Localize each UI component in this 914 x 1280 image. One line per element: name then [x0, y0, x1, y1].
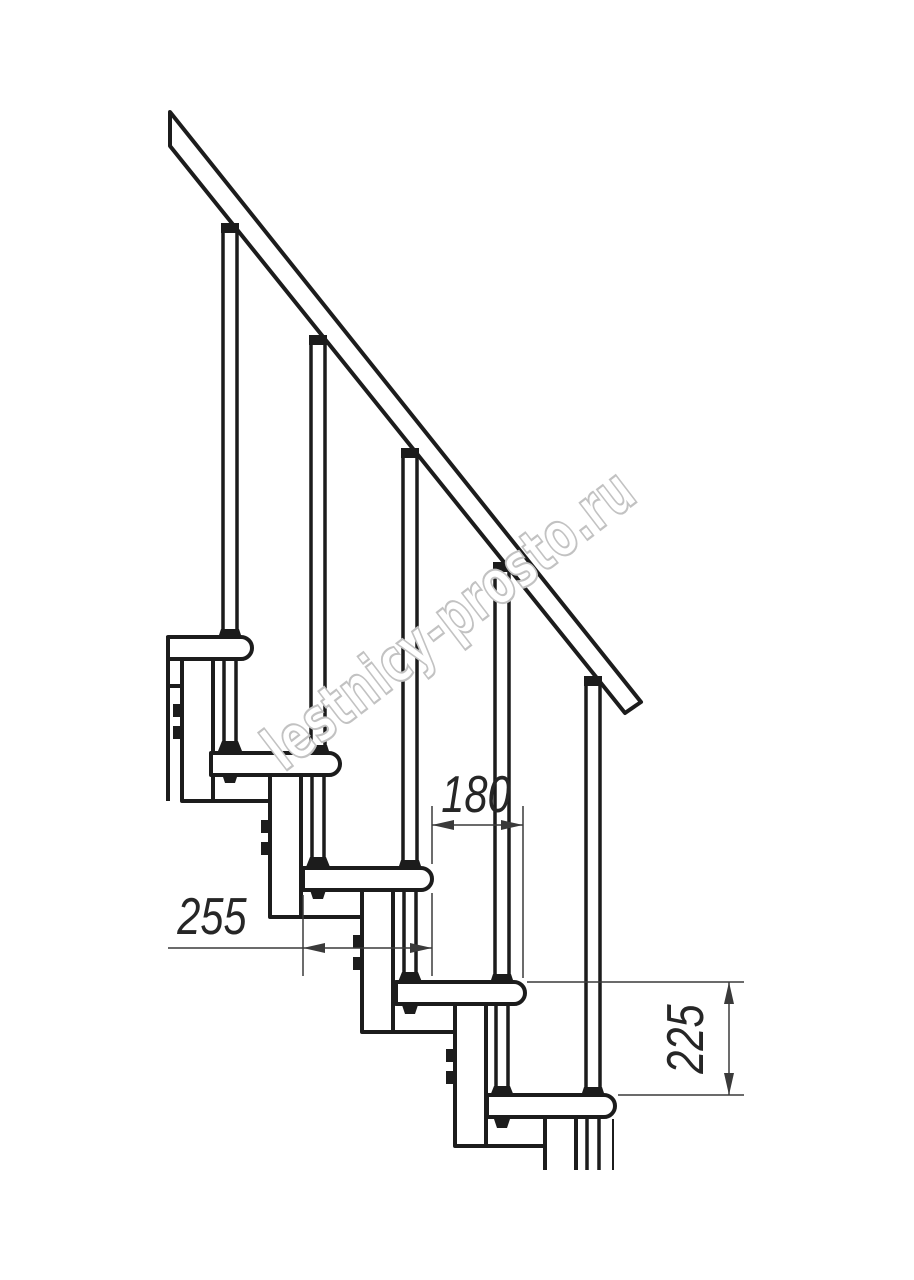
arrowhead-up-icon	[724, 982, 734, 1004]
column-3-body	[362, 890, 393, 1032]
baluster-3-tread-collar	[398, 860, 422, 869]
baluster-5-rail-connector	[584, 676, 602, 686]
tread-3	[303, 868, 432, 890]
baluster-2-foot-collar	[306, 857, 330, 867]
column-1-body	[182, 659, 213, 801]
column-2-bolt-tab	[261, 842, 271, 855]
tread-4	[396, 982, 525, 1004]
column-4-bolt-tab	[446, 1049, 456, 1062]
baluster-1-foot-collar	[218, 741, 242, 751]
column-2-bolt-tab	[261, 820, 271, 833]
column-1-bolt-tab	[173, 704, 183, 717]
dimension-255-label: 255	[176, 887, 247, 946]
dimension-180-label: 180	[441, 765, 510, 824]
column-4-bolt-tab	[446, 1071, 456, 1084]
tread-1	[168, 637, 252, 659]
arrowhead-left-icon	[303, 943, 325, 953]
baluster-2-rail-connector	[309, 335, 327, 345]
baluster-5	[584, 676, 602, 1092]
dimension-225: 225	[527, 982, 744, 1095]
column-3-bolt-tab	[353, 957, 363, 970]
support-column-5	[545, 1117, 576, 1170]
column-4-body	[455, 1004, 486, 1146]
baluster-1-tread-collar	[218, 629, 242, 638]
baluster-5-lower-rod	[587, 1116, 613, 1170]
column-2-body	[270, 775, 301, 917]
baluster-1-rail-connector	[221, 223, 239, 233]
baluster-3-under-nut	[402, 1005, 418, 1014]
technical-drawing-page: 180 255 225 lestnicy-prosto.ru	[0, 0, 914, 1280]
watermark-text: lestnicy-prosto.ru	[249, 453, 649, 784]
dimension-225-label: 225	[656, 1004, 715, 1075]
tread-5	[487, 1095, 615, 1117]
baluster-1	[221, 223, 239, 634]
staircase-section-drawing: 180 255 225 lestnicy-prosto.ru	[0, 0, 914, 1280]
arrowhead-down-icon	[724, 1073, 734, 1095]
column-1-bolt-tab	[173, 726, 183, 739]
baluster-3-rail-connector	[401, 448, 419, 458]
arrowhead-right-icon	[410, 943, 432, 953]
baluster-4-tread-collar	[490, 974, 514, 983]
baluster-5-tread-collar	[581, 1087, 605, 1096]
column-3-bolt-tab	[353, 935, 363, 948]
baluster-4-under-nut	[494, 1119, 510, 1128]
